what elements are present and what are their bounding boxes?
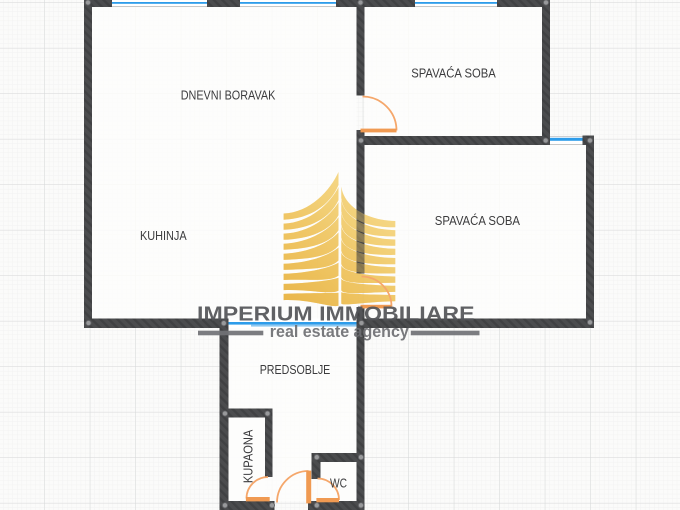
svg-text:real estate agency: real estate agency <box>270 322 410 341</box>
svg-text:KUPAONA: KUPAONA <box>242 429 256 483</box>
svg-text:KUHINJA: KUHINJA <box>140 229 187 243</box>
svg-text:SPAVAĆA SOBA: SPAVAĆA SOBA <box>411 65 496 80</box>
svg-text:DNEVNI BORAVAK: DNEVNI BORAVAK <box>181 88 276 102</box>
svg-text:SPAVAĆA SOBA: SPAVAĆA SOBA <box>435 213 521 228</box>
svg-text:PREDSOBLJE: PREDSOBLJE <box>260 363 331 377</box>
svg-text:WC: WC <box>330 476 347 490</box>
